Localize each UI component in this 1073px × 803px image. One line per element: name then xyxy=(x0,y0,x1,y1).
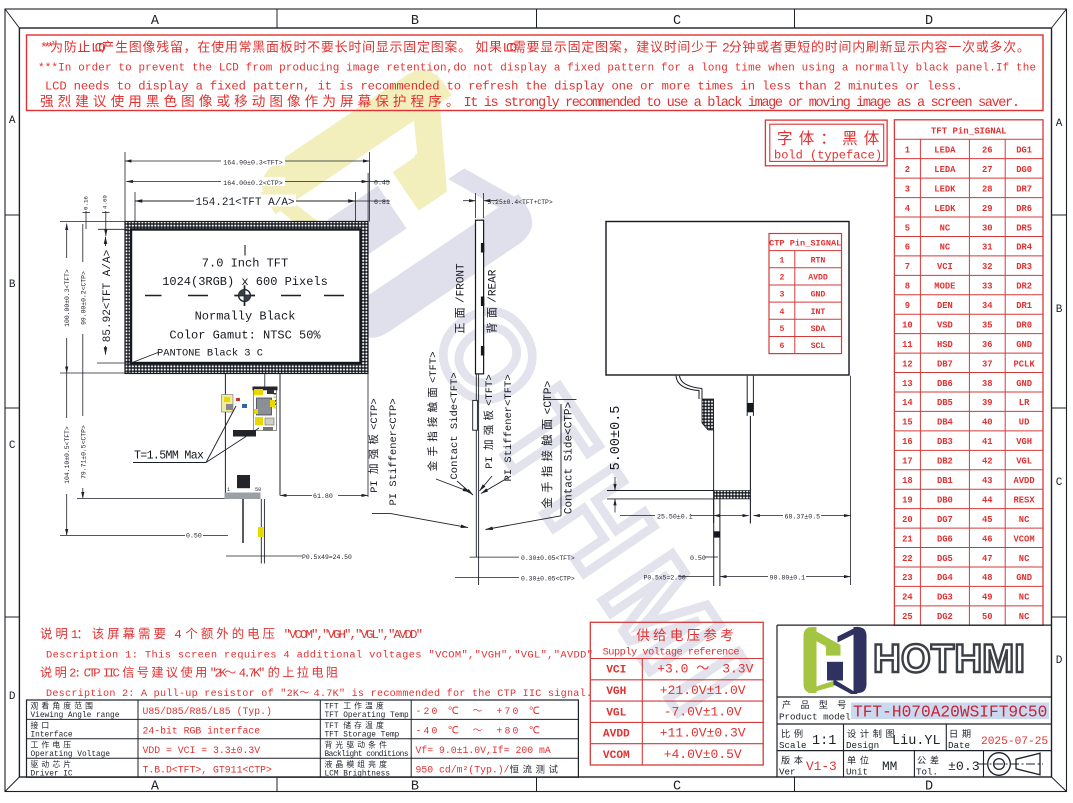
svg-text:HSD: HSD xyxy=(937,340,953,350)
svg-text:A: A xyxy=(9,115,16,127)
svg-text:INT: INT xyxy=(811,308,826,317)
svg-text:NC: NC xyxy=(1019,612,1030,622)
svg-text:AVDD: AVDD xyxy=(603,729,630,741)
svg-text:DR7: DR7 xyxy=(1016,184,1032,194)
svg-text:4.69: 4.69 xyxy=(101,195,108,209)
svg-text:38: 38 xyxy=(982,379,993,389)
svg-text:SCL: SCL xyxy=(811,342,826,351)
svg-text:CTP Pin_SIGNAL: CTP Pin_SIGNAL xyxy=(769,239,841,249)
svg-text:Scale: Scale xyxy=(779,740,807,751)
svg-text:T.B.D<TFT>, GT911<CTP>: T.B.D<TFT>, GT911<CTP> xyxy=(143,764,272,775)
svg-text:-40 ℃ ～ +80 ℃: -40 ℃ ～ +80 ℃ xyxy=(416,725,544,736)
svg-text:PI 加强板<CTP>: PI 加强板<CTP> xyxy=(367,398,381,493)
svg-text:VCI: VCI xyxy=(937,262,953,272)
svg-text:37: 37 xyxy=(982,359,993,369)
svg-text:Unit: Unit xyxy=(846,767,868,778)
svg-text:金手指接触面<CTP>: 金手指接触面<CTP> xyxy=(540,381,555,509)
svg-text:P0.5x5=2.50: P0.5x5=2.50 xyxy=(644,575,686,582)
svg-text:V1-3: V1-3 xyxy=(806,759,837,774)
svg-text:99.00±0.2<CTP>: 99.00±0.2<CTP> xyxy=(80,271,87,325)
svg-text:1:1: 1:1 xyxy=(812,734,836,749)
svg-text:VCI: VCI xyxy=(606,665,626,677)
svg-text:恒流测试: 恒流测试 xyxy=(510,763,562,775)
svg-text:VGH: VGH xyxy=(1016,437,1032,447)
svg-text:公差: 公差 xyxy=(917,755,943,767)
svg-text:104.10±0.5<TFT>: 104.10±0.5<TFT> xyxy=(64,426,71,484)
svg-text:1: 1 xyxy=(905,146,910,156)
svg-text:NC: NC xyxy=(1019,554,1030,564)
svg-text:DB6: DB6 xyxy=(937,379,953,389)
svg-text:T=1.5MM Max: T=1.5MM Max xyxy=(134,450,204,463)
svg-text:Date: Date xyxy=(948,740,970,751)
svg-text:8: 8 xyxy=(905,282,910,292)
svg-text:DB0: DB0 xyxy=(937,495,953,505)
svg-text:Supply voltage reference: Supply voltage reference xyxy=(603,647,740,659)
svg-text:日期: 日期 xyxy=(949,729,975,740)
svg-text:Product model: Product model xyxy=(779,712,851,723)
svg-text:LCM Brightness: LCM Brightness xyxy=(325,770,391,778)
svg-text:10: 10 xyxy=(902,321,913,331)
svg-text:MODE: MODE xyxy=(934,282,955,292)
svg-text:VCOM: VCOM xyxy=(1014,534,1035,544)
svg-text:7.0 Inch TFT: 7.0 Inch TFT xyxy=(202,257,288,271)
svg-text:U85/D85/R85/L85 (Typ.): U85/D85/R85/L85 (Typ.) xyxy=(143,706,272,717)
svg-text:C: C xyxy=(1056,477,1063,489)
svg-text:Operating Voltage: Operating Voltage xyxy=(31,751,111,759)
svg-text:19: 19 xyxy=(902,495,913,505)
svg-text:NC: NC xyxy=(1019,515,1030,525)
svg-text:金手指接触面<TFT>: 金手指接触面<TFT> xyxy=(426,351,440,471)
svg-text:Design: Design xyxy=(846,740,879,751)
svg-text:NC: NC xyxy=(1019,593,1030,603)
svg-text:DG5: DG5 xyxy=(937,554,953,564)
svg-text:供给电压参考: 供给电压参考 xyxy=(636,627,739,645)
svg-text:85.92<TFT A/A>: 85.92<TFT A/A> xyxy=(102,250,114,342)
svg-text:DG3: DG3 xyxy=(937,593,953,603)
svg-text:TFT Storage Temp: TFT Storage Temp xyxy=(325,731,400,739)
svg-text:正面/FRONT: 正面/FRONT xyxy=(455,263,468,334)
svg-text:NC: NC xyxy=(940,243,951,253)
svg-text:4: 4 xyxy=(905,204,911,214)
svg-text:+4.0V±0.5V: +4.0V±0.5V xyxy=(664,747,742,762)
svg-text:DB2: DB2 xyxy=(937,457,953,467)
svg-text:±0.3: ±0.3 xyxy=(948,759,980,774)
svg-text:-7.0V±1.0V: -7.0V±1.0V xyxy=(664,704,742,719)
svg-text:TFT Pin_SIGNAL: TFT Pin_SIGNAL xyxy=(931,127,1007,137)
svg-text:35: 35 xyxy=(982,321,993,331)
svg-text:0.45: 0.45 xyxy=(374,180,390,187)
svg-text:21: 21 xyxy=(902,534,913,544)
svg-text:0.50: 0.50 xyxy=(186,532,202,539)
svg-text:说明2: CTP IIC 信号建议使用"2K～4.7K" 的: 说明2: CTP IIC 信号建议使用"2K～4.7K" 的上拉电阻 xyxy=(40,665,343,681)
svg-text:27: 27 xyxy=(982,165,993,175)
svg-text:字体：黑体: 字体：黑体 xyxy=(777,130,886,149)
svg-text:DB7: DB7 xyxy=(937,359,953,369)
svg-text:46: 46 xyxy=(982,534,993,544)
svg-text:强烈建议使用黑色图像或移动图像作为屏幕保护程序。It is: 强烈建议使用黑色图像或移动图像作为屏幕保护程序。It is strongly r… xyxy=(40,93,1020,111)
svg-text:39: 39 xyxy=(982,398,993,408)
svg-text:1: 1 xyxy=(780,256,785,265)
svg-text:2: 2 xyxy=(780,274,785,283)
svg-text:AVDD: AVDD xyxy=(808,274,828,283)
svg-text:DR0: DR0 xyxy=(1016,321,1032,331)
svg-text:48: 48 xyxy=(982,573,993,583)
svg-text:LEDA: LEDA xyxy=(934,146,956,156)
svg-text:LEDK: LEDK xyxy=(934,204,956,214)
svg-text:DG4: DG4 xyxy=(937,573,954,583)
svg-text:GND: GND xyxy=(1016,340,1032,350)
svg-text:VGH: VGH xyxy=(606,686,626,698)
svg-text:bold (typeface): bold (typeface) xyxy=(774,149,882,163)
svg-text:13: 13 xyxy=(902,379,913,389)
svg-text:DG2: DG2 xyxy=(937,612,953,622)
svg-text:B: B xyxy=(9,279,16,291)
svg-text:版本: 版本 xyxy=(781,755,807,767)
svg-text:5.00±0.5: 5.00±0.5 xyxy=(609,406,624,471)
svg-text:SDA: SDA xyxy=(811,325,826,334)
svg-text:33: 33 xyxy=(982,282,993,292)
svg-text:14: 14 xyxy=(902,398,913,408)
svg-text:VDD = VCI = 3.3±0.3V: VDD = VCI = 3.3±0.3V xyxy=(143,745,261,756)
svg-text:DG6: DG6 xyxy=(937,534,953,544)
svg-text:25.50±0.1: 25.50±0.1 xyxy=(657,514,693,521)
svg-text:+11.0V±0.3V: +11.0V±0.3V xyxy=(660,726,746,741)
svg-text:Tol.: Tol. xyxy=(916,767,938,778)
svg-text:44: 44 xyxy=(982,495,993,505)
svg-text:DB3: DB3 xyxy=(937,437,953,447)
svg-text:9: 9 xyxy=(905,301,910,311)
svg-text:DEN: DEN xyxy=(937,301,953,311)
svg-text:D: D xyxy=(925,780,933,795)
svg-text:VGL: VGL xyxy=(606,707,626,719)
svg-text:43: 43 xyxy=(982,476,993,486)
svg-text:LEDK: LEDK xyxy=(934,184,956,194)
svg-text:25: 25 xyxy=(902,612,913,622)
svg-text:GND: GND xyxy=(1016,379,1032,389)
svg-text:VCOM: VCOM xyxy=(603,750,630,762)
svg-text:3: 3 xyxy=(905,184,910,194)
svg-text:VSD: VSD xyxy=(937,321,953,331)
svg-text:RESX: RESX xyxy=(1014,495,1036,505)
svg-text:Ver: Ver xyxy=(779,767,796,778)
svg-text:5.25±0.4<TFT+CTP>: 5.25±0.4<TFT+CTP> xyxy=(488,199,553,206)
svg-text:164.00±0.2<CTP>: 164.00±0.2<CTP> xyxy=(223,180,282,187)
svg-text:PI Stiffener<CTP>: PI Stiffener<CTP> xyxy=(388,398,400,505)
svg-text:PI 加强板<TFT>: PI 加强板<TFT> xyxy=(482,374,496,469)
svg-text:Backlight conditions: Backlight conditions xyxy=(325,751,409,759)
svg-text:45: 45 xyxy=(982,515,993,525)
svg-text:DR3: DR3 xyxy=(1016,262,1032,272)
svg-text:15: 15 xyxy=(902,418,913,428)
svg-text:+21.0V±1.0V: +21.0V±1.0V xyxy=(660,683,746,698)
svg-text:24: 24 xyxy=(902,593,913,603)
svg-text:3: 3 xyxy=(780,291,785,300)
svg-text:5: 5 xyxy=(780,325,785,334)
svg-text:42: 42 xyxy=(982,457,993,467)
svg-text:DB4: DB4 xyxy=(937,418,954,428)
svg-text:GND: GND xyxy=(1016,573,1032,583)
svg-text:950 cd/m²(Typ.)/: 950 cd/m²(Typ.)/ xyxy=(416,764,510,775)
svg-text:79.71±0.5<CTP>: 79.71±0.5<CTP> xyxy=(80,425,87,479)
svg-text:UD: UD xyxy=(1019,418,1030,428)
svg-text:100.00±0.3<TFT>: 100.00±0.3<TFT> xyxy=(64,269,71,327)
svg-text:2: 2 xyxy=(905,165,910,175)
svg-text:11: 11 xyxy=(902,340,913,350)
svg-text:0.16: 0.16 xyxy=(82,196,89,210)
svg-text:68.37±0.5: 68.37±0.5 xyxy=(785,514,821,521)
svg-text:47: 47 xyxy=(982,554,993,564)
svg-text:DR5: DR5 xyxy=(1016,223,1032,233)
svg-text:PCLK: PCLK xyxy=(1014,359,1036,369)
svg-text:P0.5x49=24.50: P0.5x49=24.50 xyxy=(302,554,352,561)
svg-text:0.50: 0.50 xyxy=(690,555,706,562)
svg-text:Driver IC: Driver IC xyxy=(31,770,73,778)
svg-text:说明1：该屏幕需要 4 个额外的电压 "VCOM","VGH: 说明1：该屏幕需要 4 个额外的电压 "VCOM","VGH","VGL","A… xyxy=(40,626,423,642)
svg-text:30: 30 xyxy=(982,223,993,233)
svg-text:90.80±0.1: 90.80±0.1 xyxy=(770,575,806,582)
svg-text:1: 1 xyxy=(227,487,230,493)
svg-text:D: D xyxy=(9,691,16,703)
svg-text:Color Gamut: NTSC 50%: Color Gamut: NTSC 50% xyxy=(169,329,321,343)
svg-text:LR: LR xyxy=(1019,398,1030,408)
svg-text:HOTHMI: HOTHMI xyxy=(873,637,1025,681)
svg-text:产 品 型 号: 产 品 型 号 xyxy=(782,699,850,711)
svg-text:DB5: DB5 xyxy=(937,398,953,408)
svg-text:34: 34 xyxy=(982,301,993,311)
svg-text:DR1: DR1 xyxy=(1016,301,1032,311)
svg-text:28: 28 xyxy=(982,184,993,194)
svg-text:-20 ℃ ～ +70 ℃: -20 ℃ ～ +70 ℃ xyxy=(416,706,544,717)
svg-text:6: 6 xyxy=(905,243,910,253)
svg-text:32: 32 xyxy=(982,262,993,272)
svg-text:Interface: Interface xyxy=(31,731,73,739)
svg-text:背面/REAR: 背面/REAR xyxy=(485,269,500,333)
svg-text:5: 5 xyxy=(905,223,910,233)
svg-text:Description 2: A pull-up resis: Description 2: A pull-up resistor of "2K… xyxy=(46,688,592,700)
svg-text:Description 1: This screen req: Description 1: This screen requires 4 ad… xyxy=(46,650,593,662)
svg-text:36: 36 xyxy=(982,340,993,350)
svg-text:4: 4 xyxy=(780,308,785,317)
svg-text:A: A xyxy=(151,780,160,795)
svg-text:6: 6 xyxy=(780,342,785,351)
svg-text:17: 17 xyxy=(902,457,913,467)
svg-text:C: C xyxy=(673,14,681,29)
svg-text:***In order to prevent the LCD: ***In order to prevent the LCD from prod… xyxy=(38,63,1036,75)
svg-text:Contact Side<CTP>: Contact Side<CTP> xyxy=(564,402,576,514)
svg-text:164.90±0.3<TFT>: 164.90±0.3<TFT> xyxy=(223,160,282,167)
svg-text:LEDA: LEDA xyxy=(934,165,956,175)
svg-text:RTN: RTN xyxy=(811,256,826,265)
svg-text:PANTONE Black 3 C: PANTONE Black 3 C xyxy=(157,348,263,360)
svg-text:0.30±0.05<TFT>: 0.30±0.05<TFT> xyxy=(521,555,575,562)
svg-text:DR2: DR2 xyxy=(1016,282,1032,292)
svg-text:Liu.YL: Liu.YL xyxy=(892,734,941,749)
svg-text:16: 16 xyxy=(902,437,913,447)
svg-text:12: 12 xyxy=(902,359,913,369)
svg-text:6.81: 6.81 xyxy=(374,199,390,206)
svg-text:DG7: DG7 xyxy=(937,515,953,525)
svg-text:MM: MM xyxy=(882,759,897,774)
svg-text:***为防止LCD产生图像残留，在使用常黑面板时不要长时间显: ***为防止LCD产生图像残留，在使用常黑面板时不要长时间显示固定图案。 如果L… xyxy=(40,40,1035,56)
svg-text:LCD needs to display a fixed p: LCD needs to display a fixed pattern, it… xyxy=(45,80,963,94)
svg-text:NC: NC xyxy=(940,223,951,233)
svg-text:26: 26 xyxy=(982,146,993,156)
svg-text:50: 50 xyxy=(255,487,261,493)
svg-text:PI Stiffener<TFT>: PI Stiffener<TFT> xyxy=(503,374,515,481)
svg-text:DG0: DG0 xyxy=(1016,165,1032,175)
svg-text:23: 23 xyxy=(902,573,913,583)
svg-text:154.21<TFT A/A>: 154.21<TFT A/A> xyxy=(196,197,295,209)
svg-text:DR6: DR6 xyxy=(1016,204,1032,214)
svg-text:D: D xyxy=(925,14,933,29)
svg-text:A: A xyxy=(1056,118,1063,130)
svg-text:29: 29 xyxy=(982,204,993,214)
svg-text:VGL: VGL xyxy=(1016,457,1032,467)
svg-text:DB1: DB1 xyxy=(937,476,953,486)
svg-text:0.30±0.05<CTP>: 0.30±0.05<CTP> xyxy=(521,575,575,582)
svg-text:B: B xyxy=(411,780,419,795)
svg-text:B: B xyxy=(411,14,419,29)
svg-text:TFT Operating Temp: TFT Operating Temp xyxy=(325,712,410,720)
svg-text:7: 7 xyxy=(905,262,910,272)
svg-text:Contact Side<TFT>: Contact Side<TFT> xyxy=(449,372,461,479)
svg-text:B: B xyxy=(1056,304,1063,316)
svg-text:Normally Black: Normally Black xyxy=(195,310,296,324)
svg-text:40: 40 xyxy=(982,418,993,428)
svg-text:D: D xyxy=(1056,655,1063,667)
svg-text:18: 18 xyxy=(902,476,913,486)
svg-text:AVDD: AVDD xyxy=(1014,476,1035,486)
svg-text:A: A xyxy=(151,14,160,29)
svg-text:24-bit RGB interface: 24-bit RGB interface xyxy=(143,725,261,736)
svg-text:TFT-H070A20WSIFT9C50: TFT-H070A20WSIFT9C50 xyxy=(853,704,1047,722)
svg-text:Viewing Angle range: Viewing Angle range xyxy=(31,712,120,720)
svg-text:50: 50 xyxy=(982,612,993,622)
svg-text:C: C xyxy=(9,440,16,452)
svg-text:C: C xyxy=(673,780,681,795)
svg-text:比例: 比例 xyxy=(781,728,807,740)
svg-text:设计制图: 设计制图 xyxy=(847,728,898,740)
svg-text:49: 49 xyxy=(982,593,993,603)
svg-text:1024(3RGB) x 600 Pixels: 1024(3RGB) x 600 Pixels xyxy=(162,275,328,289)
svg-text:31: 31 xyxy=(982,243,993,253)
svg-text:41: 41 xyxy=(982,437,993,447)
svg-text:2025-07-25: 2025-07-25 xyxy=(981,736,1048,748)
svg-text:单位: 单位 xyxy=(847,755,873,767)
svg-text:22: 22 xyxy=(902,554,913,564)
svg-text:+3.0 ～ 3.3V: +3.0 ～ 3.3V xyxy=(657,662,753,677)
svg-text:61.80: 61.80 xyxy=(313,493,333,500)
svg-text:Vf= 9.0±1.0V,If= 200 mA: Vf= 9.0±1.0V,If= 200 mA xyxy=(416,745,551,756)
svg-text:DR4: DR4 xyxy=(1016,243,1033,253)
svg-text:DG1: DG1 xyxy=(1016,146,1032,156)
svg-text:20: 20 xyxy=(902,515,913,525)
svg-text:GND: GND xyxy=(811,291,826,300)
